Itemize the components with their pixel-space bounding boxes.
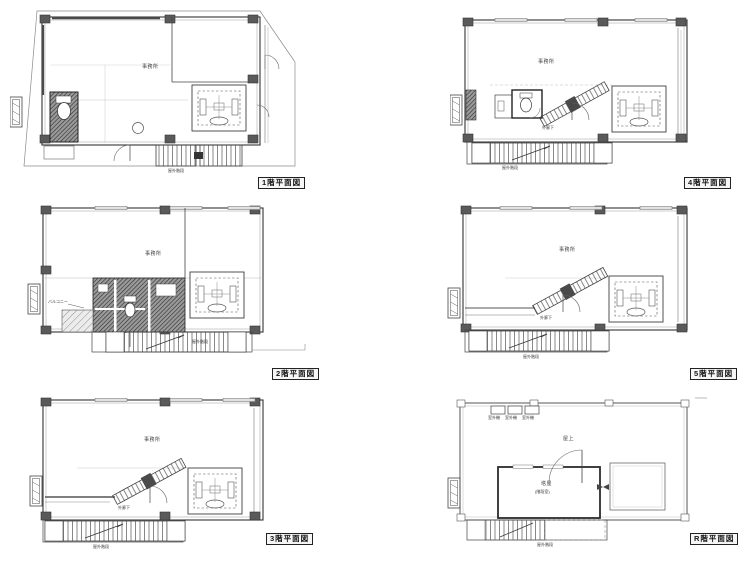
outdoor-stair xyxy=(92,332,252,352)
stair-label: 屋外階段 xyxy=(168,169,184,173)
stair-label: 屋外階段 xyxy=(93,545,109,549)
room-label: 事務所 xyxy=(144,438,161,443)
caption-rf: R階平面図 xyxy=(690,533,738,545)
floor-plan-3f: 事務所 外廊下 屋外階段 3階平面図 xyxy=(10,390,330,562)
room-label: 事務所 xyxy=(559,248,576,253)
corridor-label: 外廊下 xyxy=(540,316,552,320)
caption-5f: 5階平面図 xyxy=(690,368,737,380)
right-fence xyxy=(265,25,268,143)
site-objects xyxy=(28,284,40,314)
caption-1f: 1階平面図 xyxy=(258,177,305,189)
floor-plan-2f-drawing xyxy=(10,200,330,390)
floor-plan-5f-drawing xyxy=(445,200,751,390)
corridor-label: 外廊下 xyxy=(542,126,554,130)
outdoor-stair xyxy=(467,142,612,164)
site-objects xyxy=(448,288,460,318)
windows xyxy=(495,19,667,22)
penthouse-label: 塔屋 xyxy=(541,482,552,487)
outdoor-stair xyxy=(156,145,242,166)
elevator-room xyxy=(609,276,663,322)
drawing-sheet: 事務所 屋外階段 1階平面図 xyxy=(0,0,751,562)
stair-label: 屋外階段 xyxy=(192,340,208,344)
elevator-room xyxy=(190,272,244,318)
caption-3f: 3階平面図 xyxy=(266,533,313,545)
site-objects xyxy=(30,476,42,506)
windows xyxy=(95,207,260,210)
ac-unit-label: 室外機 xyxy=(505,416,517,420)
ac-unit-label: 室外機 xyxy=(488,416,500,420)
elevator-room xyxy=(188,468,242,514)
corridor-label: 外廊下 xyxy=(118,506,130,510)
room-label: 事務所 xyxy=(142,65,159,70)
site-lines xyxy=(252,344,305,350)
shaft-hatch xyxy=(466,90,476,120)
ac-units xyxy=(491,406,539,414)
site-objects xyxy=(10,97,22,127)
stair-label: 屋外階段 xyxy=(523,355,539,359)
caption-2f: 2階平面図 xyxy=(272,368,319,380)
elevator-room xyxy=(612,86,666,132)
toilet-room xyxy=(50,92,78,142)
outdoor-stair xyxy=(467,520,607,540)
windows xyxy=(95,399,255,402)
roof-label: 屋上 xyxy=(563,437,574,442)
ac-unit-label: 室外機 xyxy=(522,416,534,420)
windows xyxy=(500,207,672,210)
caption-4f: 4階平面図 xyxy=(684,177,731,189)
floor-plan-4f-drawing xyxy=(450,5,750,200)
storage-room xyxy=(495,95,512,118)
stair-label: 屋外階段 xyxy=(502,166,518,170)
floor-plan-4f: 事務所 外廊下 屋外階段 4階平面図 xyxy=(450,5,750,200)
penthouse-sub-label: (階段室) xyxy=(535,490,550,494)
stair-label: 屋外階段 xyxy=(537,543,553,547)
outdoor-stair xyxy=(465,330,609,352)
site-objects xyxy=(450,95,462,125)
room-label: 事務所 xyxy=(538,60,555,65)
entry-step xyxy=(44,146,74,159)
room-label: 事務所 xyxy=(145,252,162,257)
elevator-room xyxy=(192,85,246,131)
toilet-room xyxy=(512,90,542,118)
site-objects xyxy=(448,478,460,508)
floor-plan-1f: 事務所 屋外階段 1階平面図 xyxy=(10,5,330,200)
balcony-label: バルコニー xyxy=(48,300,68,304)
floor-plan-2f: 事務所 バルコニー 屋外階段 2階平面図 xyxy=(10,200,330,390)
outdoor-stair xyxy=(43,520,185,542)
floor-plan-5f: 事務所 外廊下 屋外階段 5階平面図 xyxy=(445,200,751,390)
floor-plan-rf: 室外機 室外機 室外機 屋上 塔屋 (階段室) 屋外階段 R階平面図 xyxy=(445,390,751,562)
